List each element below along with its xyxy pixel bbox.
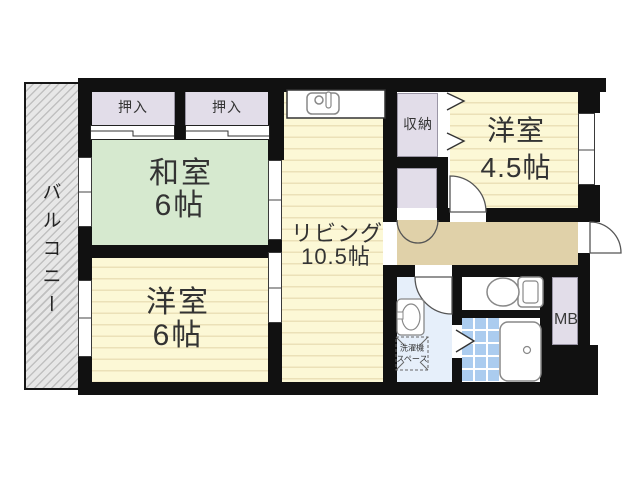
balcony-label: バルコニー bbox=[41, 182, 60, 322]
closet-a-label: 押入 bbox=[118, 100, 148, 114]
kitchen-sink-icon bbox=[307, 92, 339, 114]
closet-b-label: 押入 bbox=[212, 100, 242, 114]
bathtub-icon bbox=[500, 322, 541, 381]
toilet-icon bbox=[487, 277, 543, 307]
western45-size: 4.5帖 bbox=[481, 154, 552, 182]
meter-box-label: MB bbox=[554, 312, 578, 328]
living-name: リビング bbox=[291, 223, 383, 245]
washer-space-label-1: 洗濯機 bbox=[400, 344, 424, 352]
western45-name: 洋室 bbox=[487, 117, 545, 145]
entry-door-arc-icon bbox=[590, 222, 621, 253]
living-size: 10.5帖 bbox=[301, 246, 371, 268]
japanese-room-size: 6帖 bbox=[155, 191, 206, 221]
japanese-room-name: 和室 bbox=[149, 159, 213, 189]
kitchen-counter bbox=[287, 90, 385, 118]
floor-plan: バルコニー 押入 押入 和室 6帖 洋室 6帖 リビング 10.5帖 収納 洋室… bbox=[0, 0, 640, 480]
washbasin-icon bbox=[397, 299, 424, 335]
double-door-icon bbox=[397, 220, 438, 243]
western6-size: 6帖 bbox=[153, 321, 204, 351]
storage-label: 収納 bbox=[403, 117, 433, 131]
western6-name: 洋室 bbox=[146, 288, 210, 318]
washer-space-label-2: スペース bbox=[396, 355, 427, 363]
